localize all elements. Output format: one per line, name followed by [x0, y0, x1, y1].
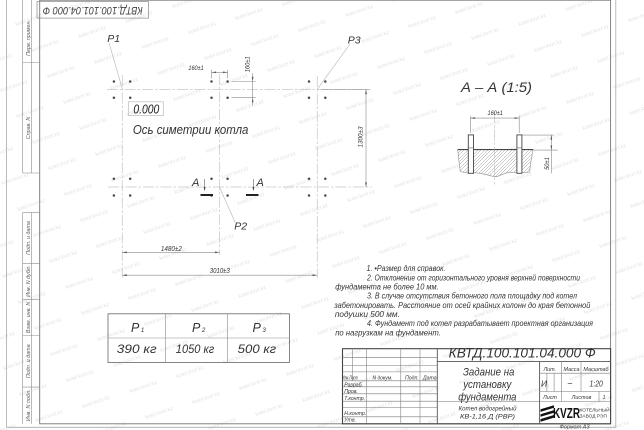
svg-text:1300±3: 1300±3: [357, 126, 364, 148]
svg-text:Подп.: Подп.: [405, 375, 419, 381]
svg-text:500 кг: 500 кг: [238, 344, 277, 356]
svg-text:2. Отклонение от горизонтально: 2. Отклонение от горизонтального уровня …: [366, 274, 580, 283]
svg-text:160±1: 160±1: [488, 110, 503, 117]
svg-text:установку: установку: [462, 379, 512, 391]
svg-text:160±1: 160±1: [245, 56, 252, 72]
svg-text:P3: P3: [348, 34, 361, 46]
svg-text:4. Фундамент под котел разраба: 4. Фундамент под котел разрабатывает про…: [367, 319, 594, 328]
svg-text:0.000: 0.000: [133, 101, 160, 116]
svg-text:A: A: [256, 177, 264, 189]
svg-text:N докум.: N докум.: [373, 375, 393, 381]
svg-text:КВ-1,16 Д (РВР): КВ-1,16 Д (РВР): [460, 415, 515, 421]
svg-text:Задание на: Задание на: [463, 366, 515, 378]
svg-text:KVZR: KVZR: [553, 406, 580, 422]
svg-text:Инв. N подл.: Инв. N подл.: [26, 390, 32, 422]
svg-text:1050 кг: 1050 кг: [176, 344, 215, 356]
svg-text:–: –: [567, 379, 573, 388]
svg-text:Подп. и дата: Подп. и дата: [26, 221, 32, 255]
svg-text:Разраб.: Разраб.: [344, 382, 363, 388]
svg-text:Лист: Лист: [542, 395, 557, 401]
svg-text:Подп. и дата: Подп. и дата: [26, 344, 32, 378]
svg-text:подушки 500 мм.: подушки 500 мм.: [335, 310, 400, 319]
svg-text:P2: P2: [234, 220, 247, 232]
svg-text:забетонировать. Расстояние от: забетонировать. Расстояние от осей крайн…: [333, 301, 590, 310]
svg-text:Листов: Листов: [571, 395, 592, 401]
svg-text:Ось симетрии котла: Ось симетрии котла: [133, 123, 249, 137]
svg-text:Взам. инв. N: Взам. инв. N: [26, 302, 32, 334]
svg-text:Пров.: Пров.: [344, 389, 358, 395]
svg-text:390 кг: 390 кг: [117, 344, 157, 356]
svg-text:фундамента не более 10 мм.: фундамента не более 10 мм.: [335, 282, 439, 291]
svg-text:1: 1: [603, 395, 606, 401]
svg-text:А – А (1:5): А – А (1:5): [460, 80, 532, 95]
svg-text:1. •Размер для справок.: 1. •Размер для справок.: [367, 264, 446, 273]
svg-text:Инв. N дубл.: Инв. N дубл.: [26, 266, 32, 297]
svg-text:Изм.Лист: Изм.Лист: [342, 375, 358, 381]
svg-text:Утв.: Утв.: [344, 417, 356, 423]
svg-text:Масштаб: Масштаб: [583, 367, 609, 373]
svg-text:160±1: 160±1: [188, 65, 203, 72]
svg-text:КВТД.100.101.04.000 Ф: КВТД.100.101.04.000 Ф: [449, 345, 596, 360]
svg-text:1480±2: 1480±2: [161, 246, 182, 253]
svg-text:Формат А3: Формат А3: [559, 424, 590, 430]
svg-text:Перв. примен.: Перв. примен.: [26, 20, 32, 56]
svg-text:Котел водогрейный: Котел водогрейный: [459, 406, 518, 413]
svg-text:Справ. N: Справ. N: [26, 117, 32, 140]
svg-text:Т.контр.: Т.контр.: [344, 396, 365, 402]
svg-text:И: И: [541, 378, 548, 388]
svg-text:КВТД.100.101.04.000 Ф: КВТД.100.101.04.000 Ф: [43, 4, 143, 16]
svg-text:1:20: 1:20: [590, 378, 604, 388]
svg-text:Н.контр.: Н.контр.: [344, 411, 366, 417]
svg-text:фундамента: фундамента: [458, 391, 516, 403]
svg-text:Масса: Масса: [564, 367, 580, 373]
svg-text:3. В случае отсутствия бетонно: 3. В случае отсутствия бетонного пола пл…: [367, 292, 577, 301]
svg-text:P1: P1: [107, 33, 120, 45]
svg-text:Лит.: Лит.: [542, 367, 556, 373]
svg-text:3010±3: 3010±3: [210, 268, 230, 275]
svg-text:ЗАВОД РЭП: ЗАВОД РЭП: [580, 413, 608, 419]
svg-text:по нагрузкам на фундамент.: по нагрузкам на фундамент.: [335, 328, 441, 337]
svg-text:Дата: Дата: [422, 375, 437, 381]
svg-text:50±1: 50±1: [544, 157, 551, 170]
svg-text:A: A: [191, 177, 199, 189]
